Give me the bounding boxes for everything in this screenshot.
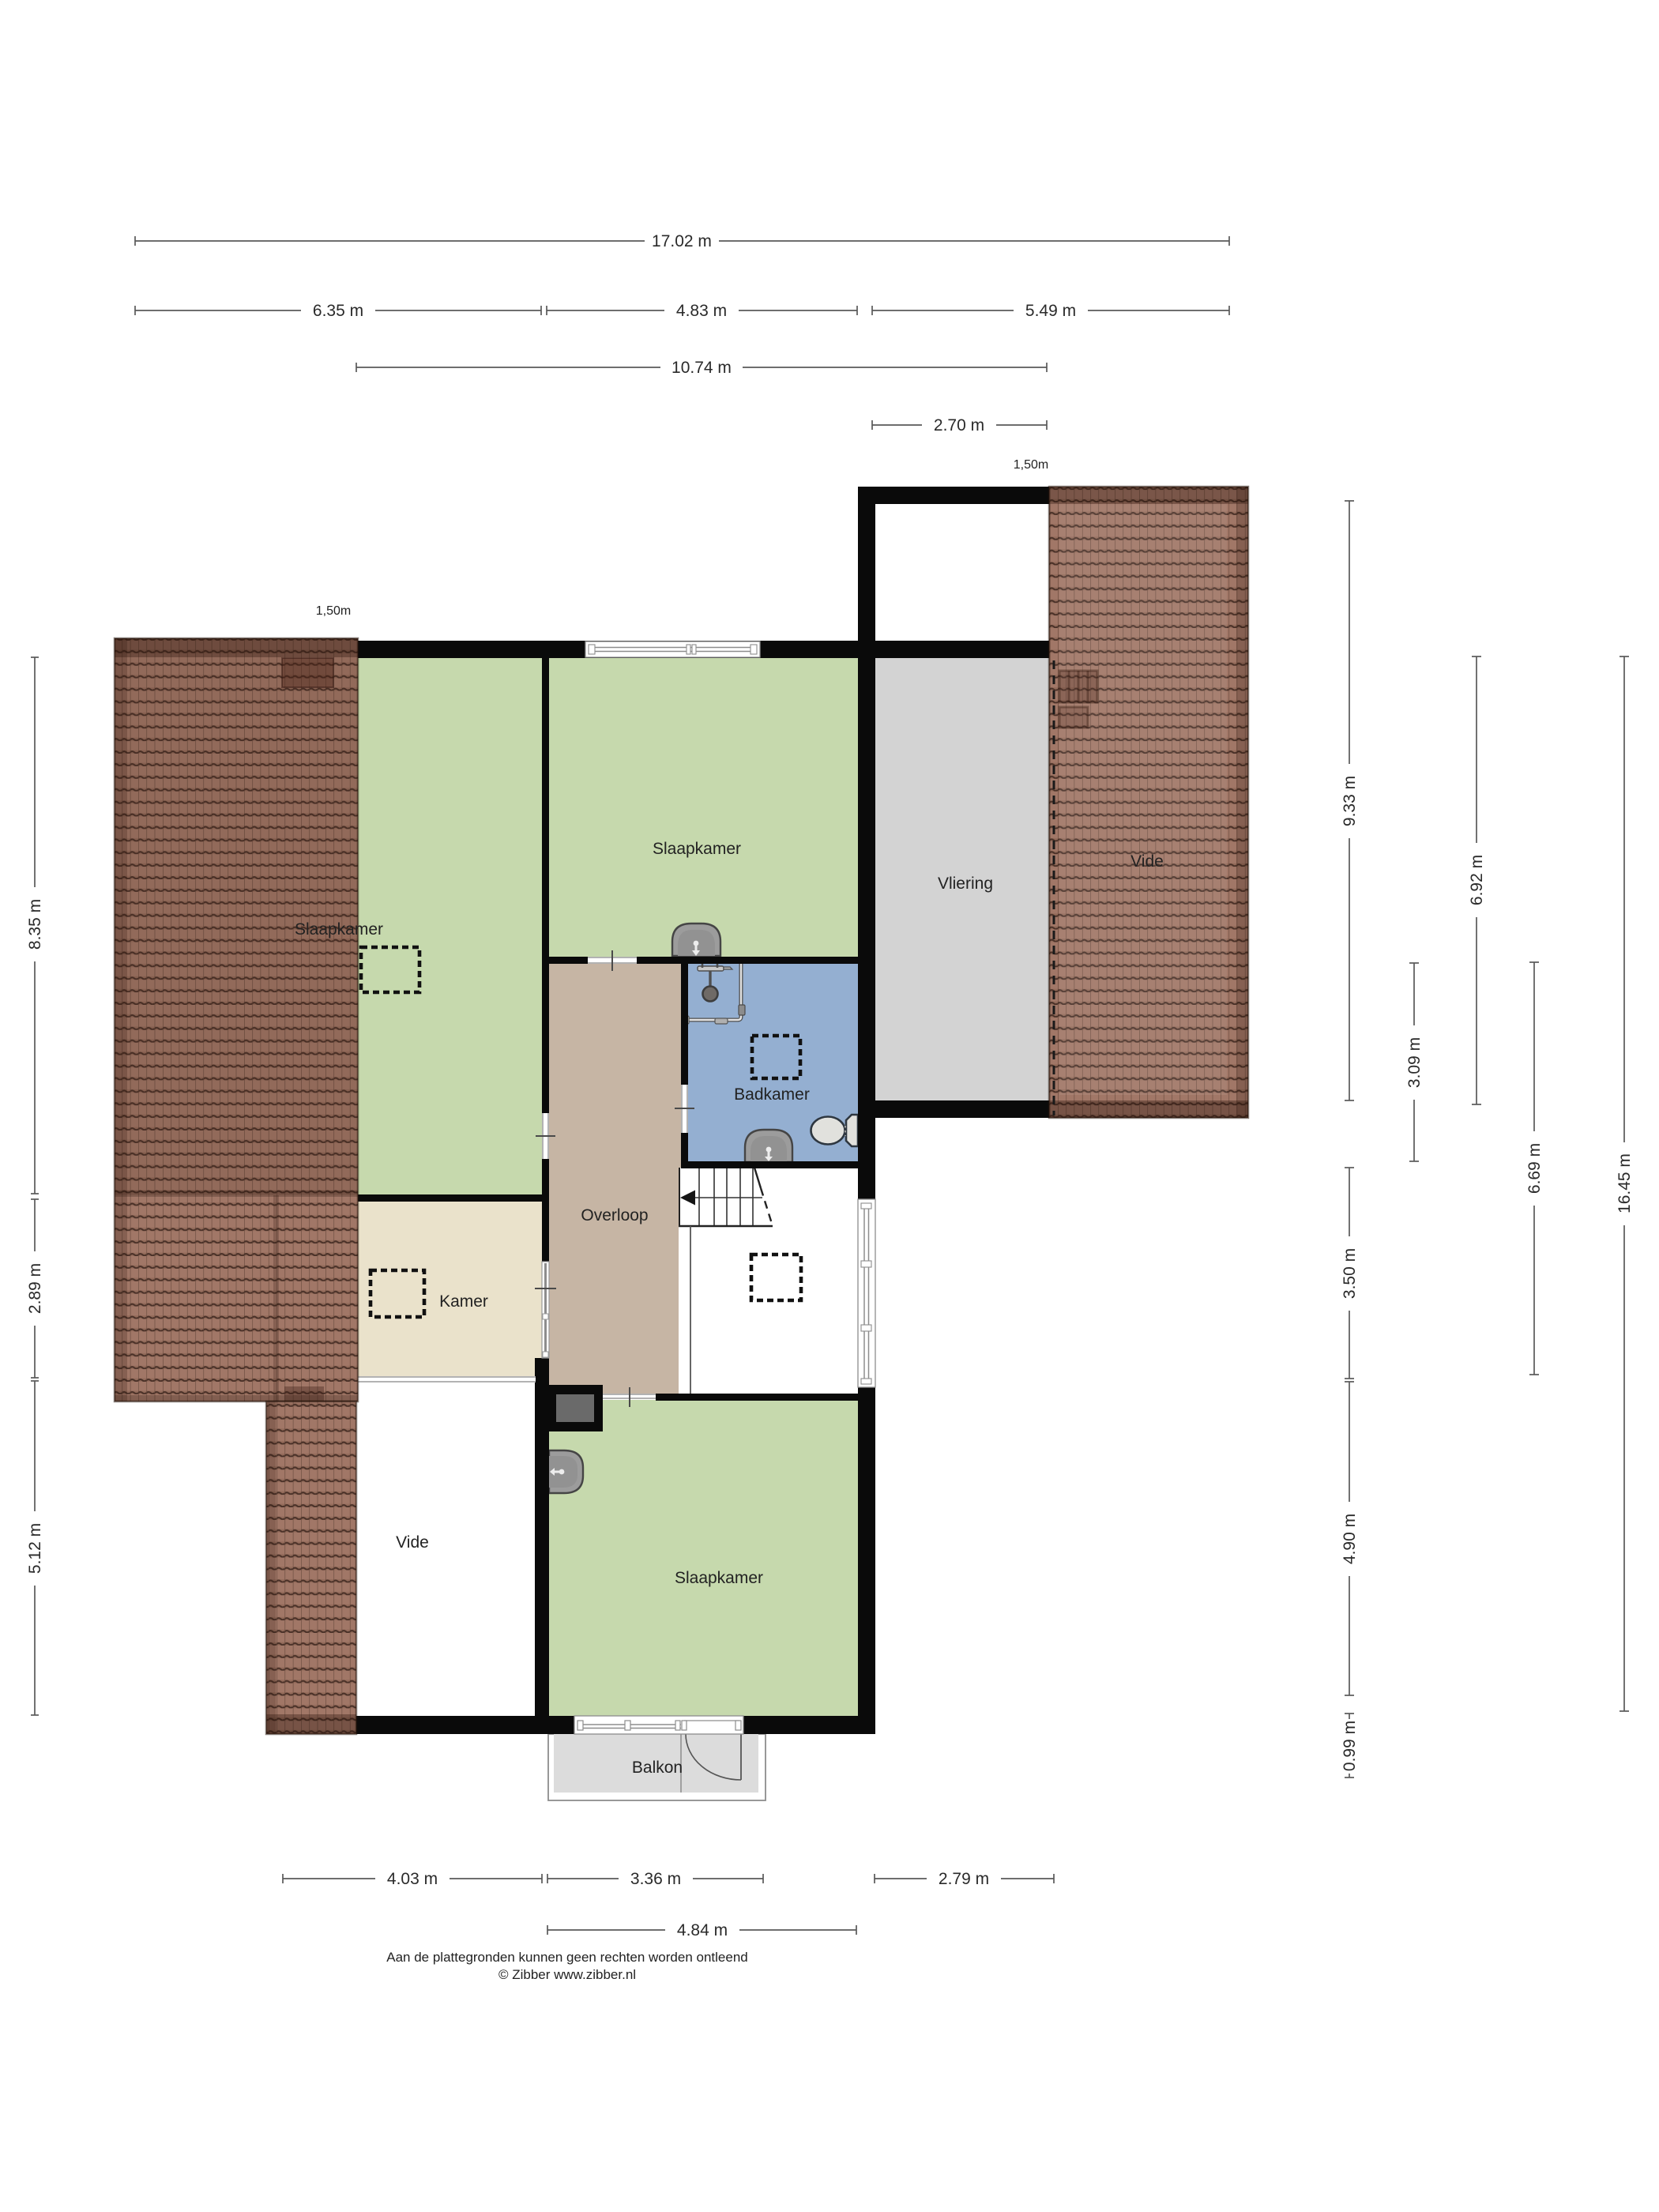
svg-text:© Zibber www.zibber.nl: © Zibber www.zibber.nl [498, 1967, 636, 1982]
svg-text:1,50m: 1,50m [316, 604, 351, 618]
svg-text:2.70 m: 2.70 m [934, 416, 984, 434]
svg-text:Slaapkamer: Slaapkamer [675, 1569, 763, 1587]
svg-text:Balkon: Balkon [632, 1759, 683, 1777]
svg-text:Slaapkamer: Slaapkamer [653, 840, 741, 858]
svg-text:5.49 m: 5.49 m [1025, 302, 1076, 320]
svg-text:3.36 m: 3.36 m [630, 1870, 681, 1888]
svg-text:5.12 m: 5.12 m [26, 1523, 44, 1574]
svg-text:Vide: Vide [396, 1533, 429, 1552]
svg-text:4.84 m: 4.84 m [677, 1921, 728, 1939]
svg-text:4.83 m: 4.83 m [676, 302, 727, 320]
svg-text:8.35 m: 8.35 m [26, 899, 44, 950]
svg-text:2.89 m: 2.89 m [26, 1263, 44, 1314]
svg-text:6.92 m: 6.92 m [1468, 855, 1486, 905]
svg-text:4.90 m: 4.90 m [1341, 1514, 1359, 1564]
svg-text:0.99 m: 0.99 m [1341, 1721, 1359, 1771]
svg-text:1,50m: 1,50m [1014, 458, 1048, 472]
svg-text:3.09 m: 3.09 m [1405, 1037, 1424, 1088]
svg-text:Kamer: Kamer [439, 1292, 488, 1311]
svg-text:Vliering: Vliering [938, 875, 993, 893]
svg-text:9.33 m: 9.33 m [1341, 776, 1359, 826]
svg-text:17.02 m: 17.02 m [652, 232, 712, 250]
svg-text:6.35 m: 6.35 m [313, 302, 363, 320]
svg-text:Aan de plattegronden kunnen ge: Aan de plattegronden kunnen geen rechten… [386, 1950, 747, 1965]
svg-text:10.74 m: 10.74 m [671, 359, 732, 377]
svg-text:Vide: Vide [1130, 852, 1164, 871]
svg-text:16.45 m: 16.45 m [1616, 1153, 1634, 1213]
svg-text:Slaapkamer: Slaapkamer [295, 920, 383, 939]
svg-text:Badkamer: Badkamer [734, 1085, 810, 1104]
svg-text:Overloop: Overloop [581, 1206, 648, 1224]
svg-text:6.69 m: 6.69 m [1525, 1143, 1544, 1194]
svg-text:2.79 m: 2.79 m [939, 1870, 989, 1888]
svg-text:3.50 m: 3.50 m [1341, 1248, 1359, 1299]
svg-text:4.03 m: 4.03 m [387, 1870, 438, 1888]
